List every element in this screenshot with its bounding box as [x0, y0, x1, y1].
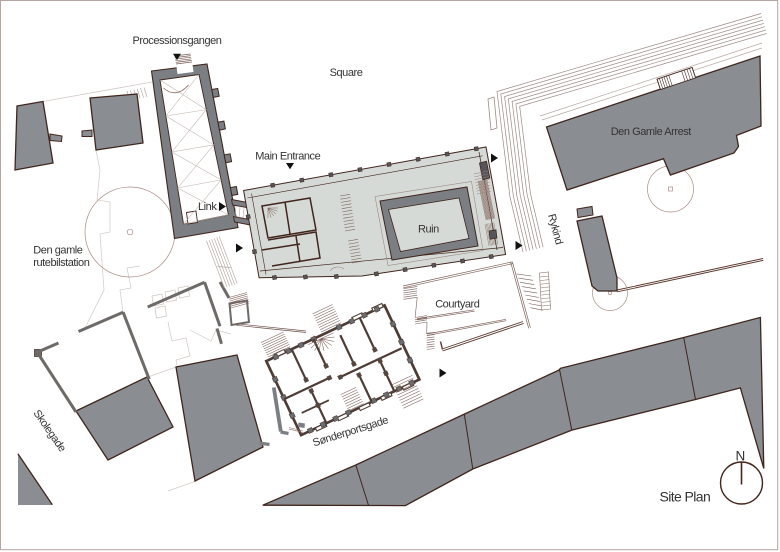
- svg-text:Site Plan: Site Plan: [660, 489, 711, 505]
- svg-text:Den gamle: Den gamle: [33, 245, 82, 257]
- svg-text:Courtyard: Courtyard: [435, 299, 480, 311]
- svg-text:Square: Square: [330, 67, 363, 79]
- svg-text:Den Gamle Arrest: Den Gamle Arrest: [611, 126, 692, 138]
- svg-text:Main Entrance: Main Entrance: [255, 150, 320, 162]
- svg-text:N: N: [736, 449, 746, 464]
- svg-text:Link: Link: [198, 201, 217, 213]
- svg-text:rutebilstation: rutebilstation: [33, 257, 89, 269]
- svg-text:Ruin: Ruin: [418, 224, 439, 236]
- svg-text:Processionsgangen: Processionsgangen: [133, 35, 222, 47]
